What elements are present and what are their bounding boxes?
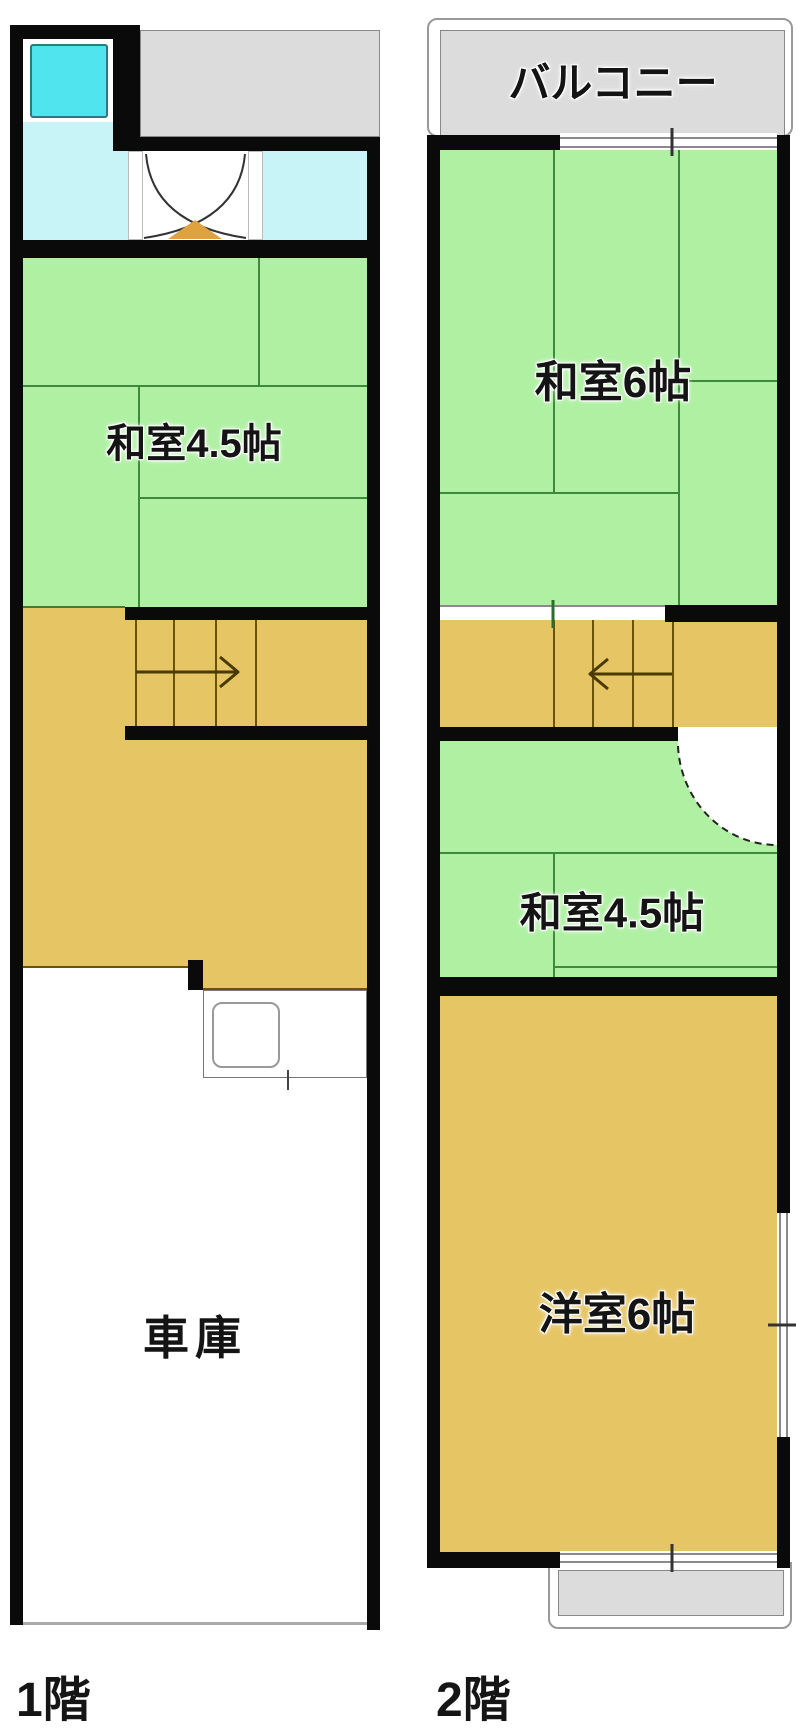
window-line: [786, 1213, 788, 1437]
room-label-youshitsu6-2f: 洋室6帖: [539, 1278, 695, 1342]
tatami-line: [553, 966, 777, 968]
floorplan-canvas: 和室4.5帖 車庫 1階: [0, 0, 800, 1730]
stairwell-2f: [440, 620, 777, 727]
tatami-line: [678, 380, 777, 382]
stair-tread: [672, 620, 674, 727]
tatami-line: [440, 852, 777, 854]
bottom-bay: [558, 1570, 784, 1616]
wall: [665, 605, 777, 622]
sliding-door-opening: [440, 607, 665, 620]
floor2-plan: バルコニー 和室6帖 和室4.5帖 洋室6帖 2階: [0, 0, 800, 1730]
window-line: [779, 1213, 781, 1437]
stair-tread: [632, 620, 634, 727]
window-line: [560, 146, 777, 148]
room-washitsu45-2f: [440, 741, 777, 977]
window-line: [560, 137, 777, 139]
room-youshitsu6-2f: [440, 996, 777, 1552]
stair-tread: [553, 620, 555, 727]
wall: [777, 1437, 790, 1568]
room-label-washitsu6-2f: 和室6帖: [535, 346, 691, 410]
wall: [427, 977, 790, 996]
tatami-line: [553, 150, 555, 492]
window-line: [560, 1553, 777, 1555]
window-line: [560, 1561, 777, 1563]
wall: [427, 135, 440, 1568]
wall: [427, 1552, 560, 1568]
wall: [777, 135, 790, 1213]
wall: [427, 135, 560, 150]
wall: [440, 727, 678, 741]
floor2-caption: 2階: [436, 1660, 511, 1730]
stair-tread: [592, 620, 594, 727]
room-label-washitsu45-2f: 和室4.5帖: [520, 880, 704, 941]
balcony-label: バルコニー: [508, 50, 717, 111]
tatami-line: [440, 492, 680, 494]
